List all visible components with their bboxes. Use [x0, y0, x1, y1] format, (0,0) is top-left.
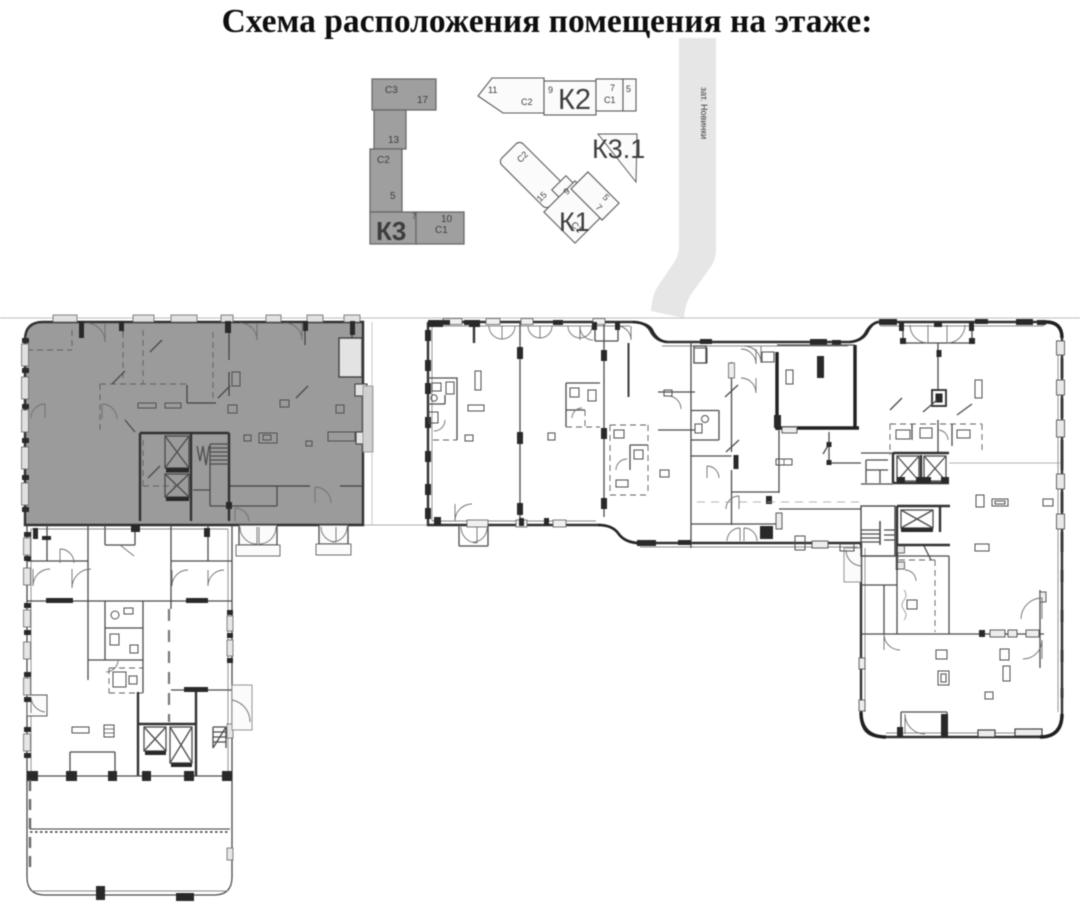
svg-text:7: 7 [610, 83, 615, 93]
svg-text:С3: С3 [385, 85, 398, 96]
svg-text:11: 11 [488, 85, 497, 95]
svg-text:10: 10 [441, 214, 453, 225]
svg-text:К2: К2 [558, 84, 591, 116]
svg-text:К3.1: К3.1 [592, 134, 645, 164]
svg-text:Схема расположения помещения н: Схема расположения помещения на этаже: [222, 3, 873, 40]
svg-text:С2: С2 [521, 97, 533, 107]
svg-text:зат. Новинки: зат. Новинки [699, 87, 709, 139]
svg-text:7: 7 [412, 212, 417, 221]
svg-text:С2: С2 [377, 155, 390, 166]
svg-text:С1: С1 [435, 225, 448, 236]
svg-text:5: 5 [626, 84, 631, 94]
svg-text:К1: К1 [559, 207, 590, 237]
svg-text:9: 9 [548, 85, 553, 95]
svg-text:К3: К3 [376, 216, 406, 246]
svg-text:13: 13 [388, 135, 400, 146]
svg-text:5: 5 [390, 191, 396, 202]
svg-text:17: 17 [417, 95, 429, 106]
svg-text:С1: С1 [604, 95, 616, 105]
